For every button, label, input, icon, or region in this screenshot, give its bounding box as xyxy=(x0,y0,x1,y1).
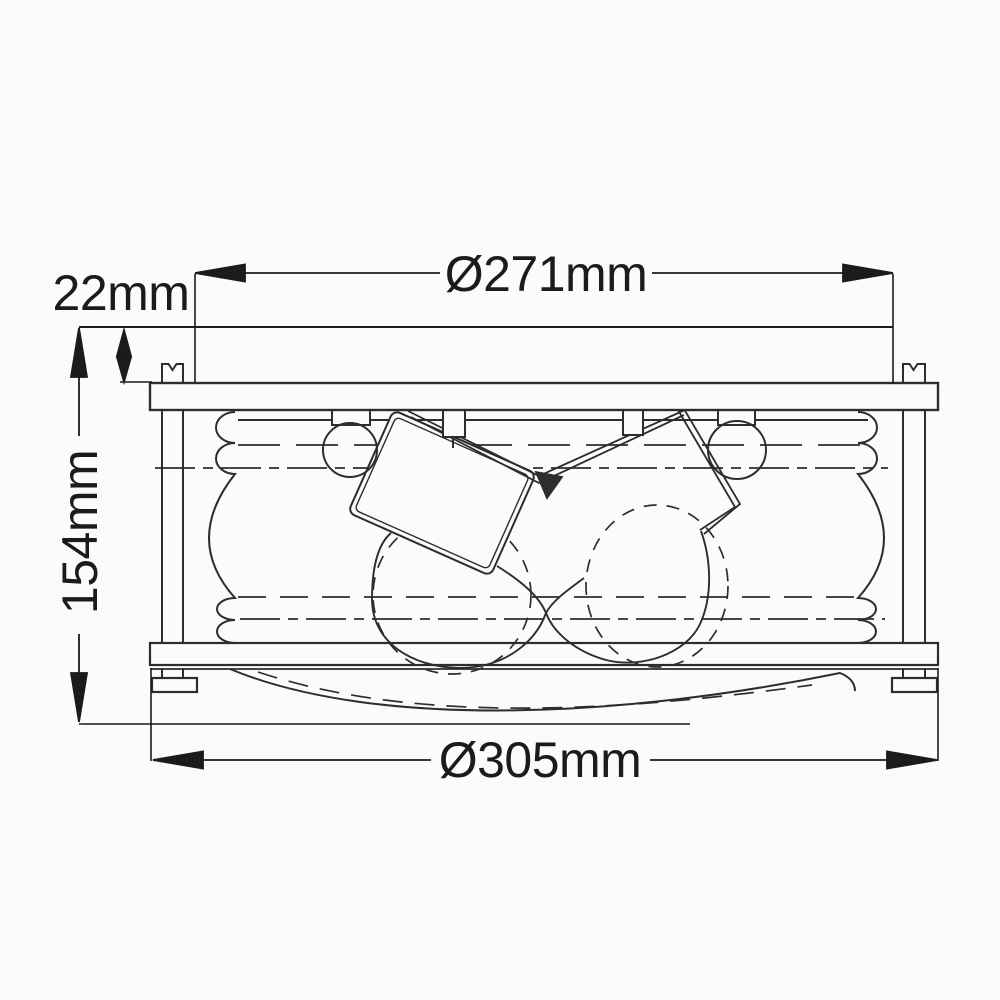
glass-rib-lines xyxy=(155,420,888,619)
screw-post-top-right xyxy=(903,364,925,383)
wire-loops xyxy=(372,531,709,668)
glass-edge-left xyxy=(209,412,235,643)
side-posts xyxy=(162,410,925,678)
screw-post-top-left xyxy=(162,364,183,383)
fixture-drawing xyxy=(150,364,938,710)
bent-wire-right xyxy=(678,409,740,534)
glass-edge-right xyxy=(858,412,884,643)
dim-271-label: Ø271mm xyxy=(445,246,648,302)
dim-154-label: 154mm xyxy=(52,450,108,614)
dim-22 xyxy=(117,330,152,382)
dim-22-label: 22mm xyxy=(53,265,190,321)
product-dimension-diagram: Ø271mm 22mm 154mm Ø305mm xyxy=(0,0,1000,1000)
foot-left xyxy=(152,678,197,692)
bulb-left xyxy=(323,423,377,477)
bottom-band xyxy=(150,643,938,669)
canopy-plate xyxy=(150,383,938,410)
bracket-clip xyxy=(536,472,562,498)
technical-drawing: Ø271mm 22mm 154mm Ø305mm xyxy=(0,0,1000,1000)
foot-right xyxy=(892,678,937,692)
dim-305-label: Ø305mm xyxy=(439,732,642,788)
glass-dome-hidden-line xyxy=(258,672,812,708)
bulb-right xyxy=(708,421,766,479)
